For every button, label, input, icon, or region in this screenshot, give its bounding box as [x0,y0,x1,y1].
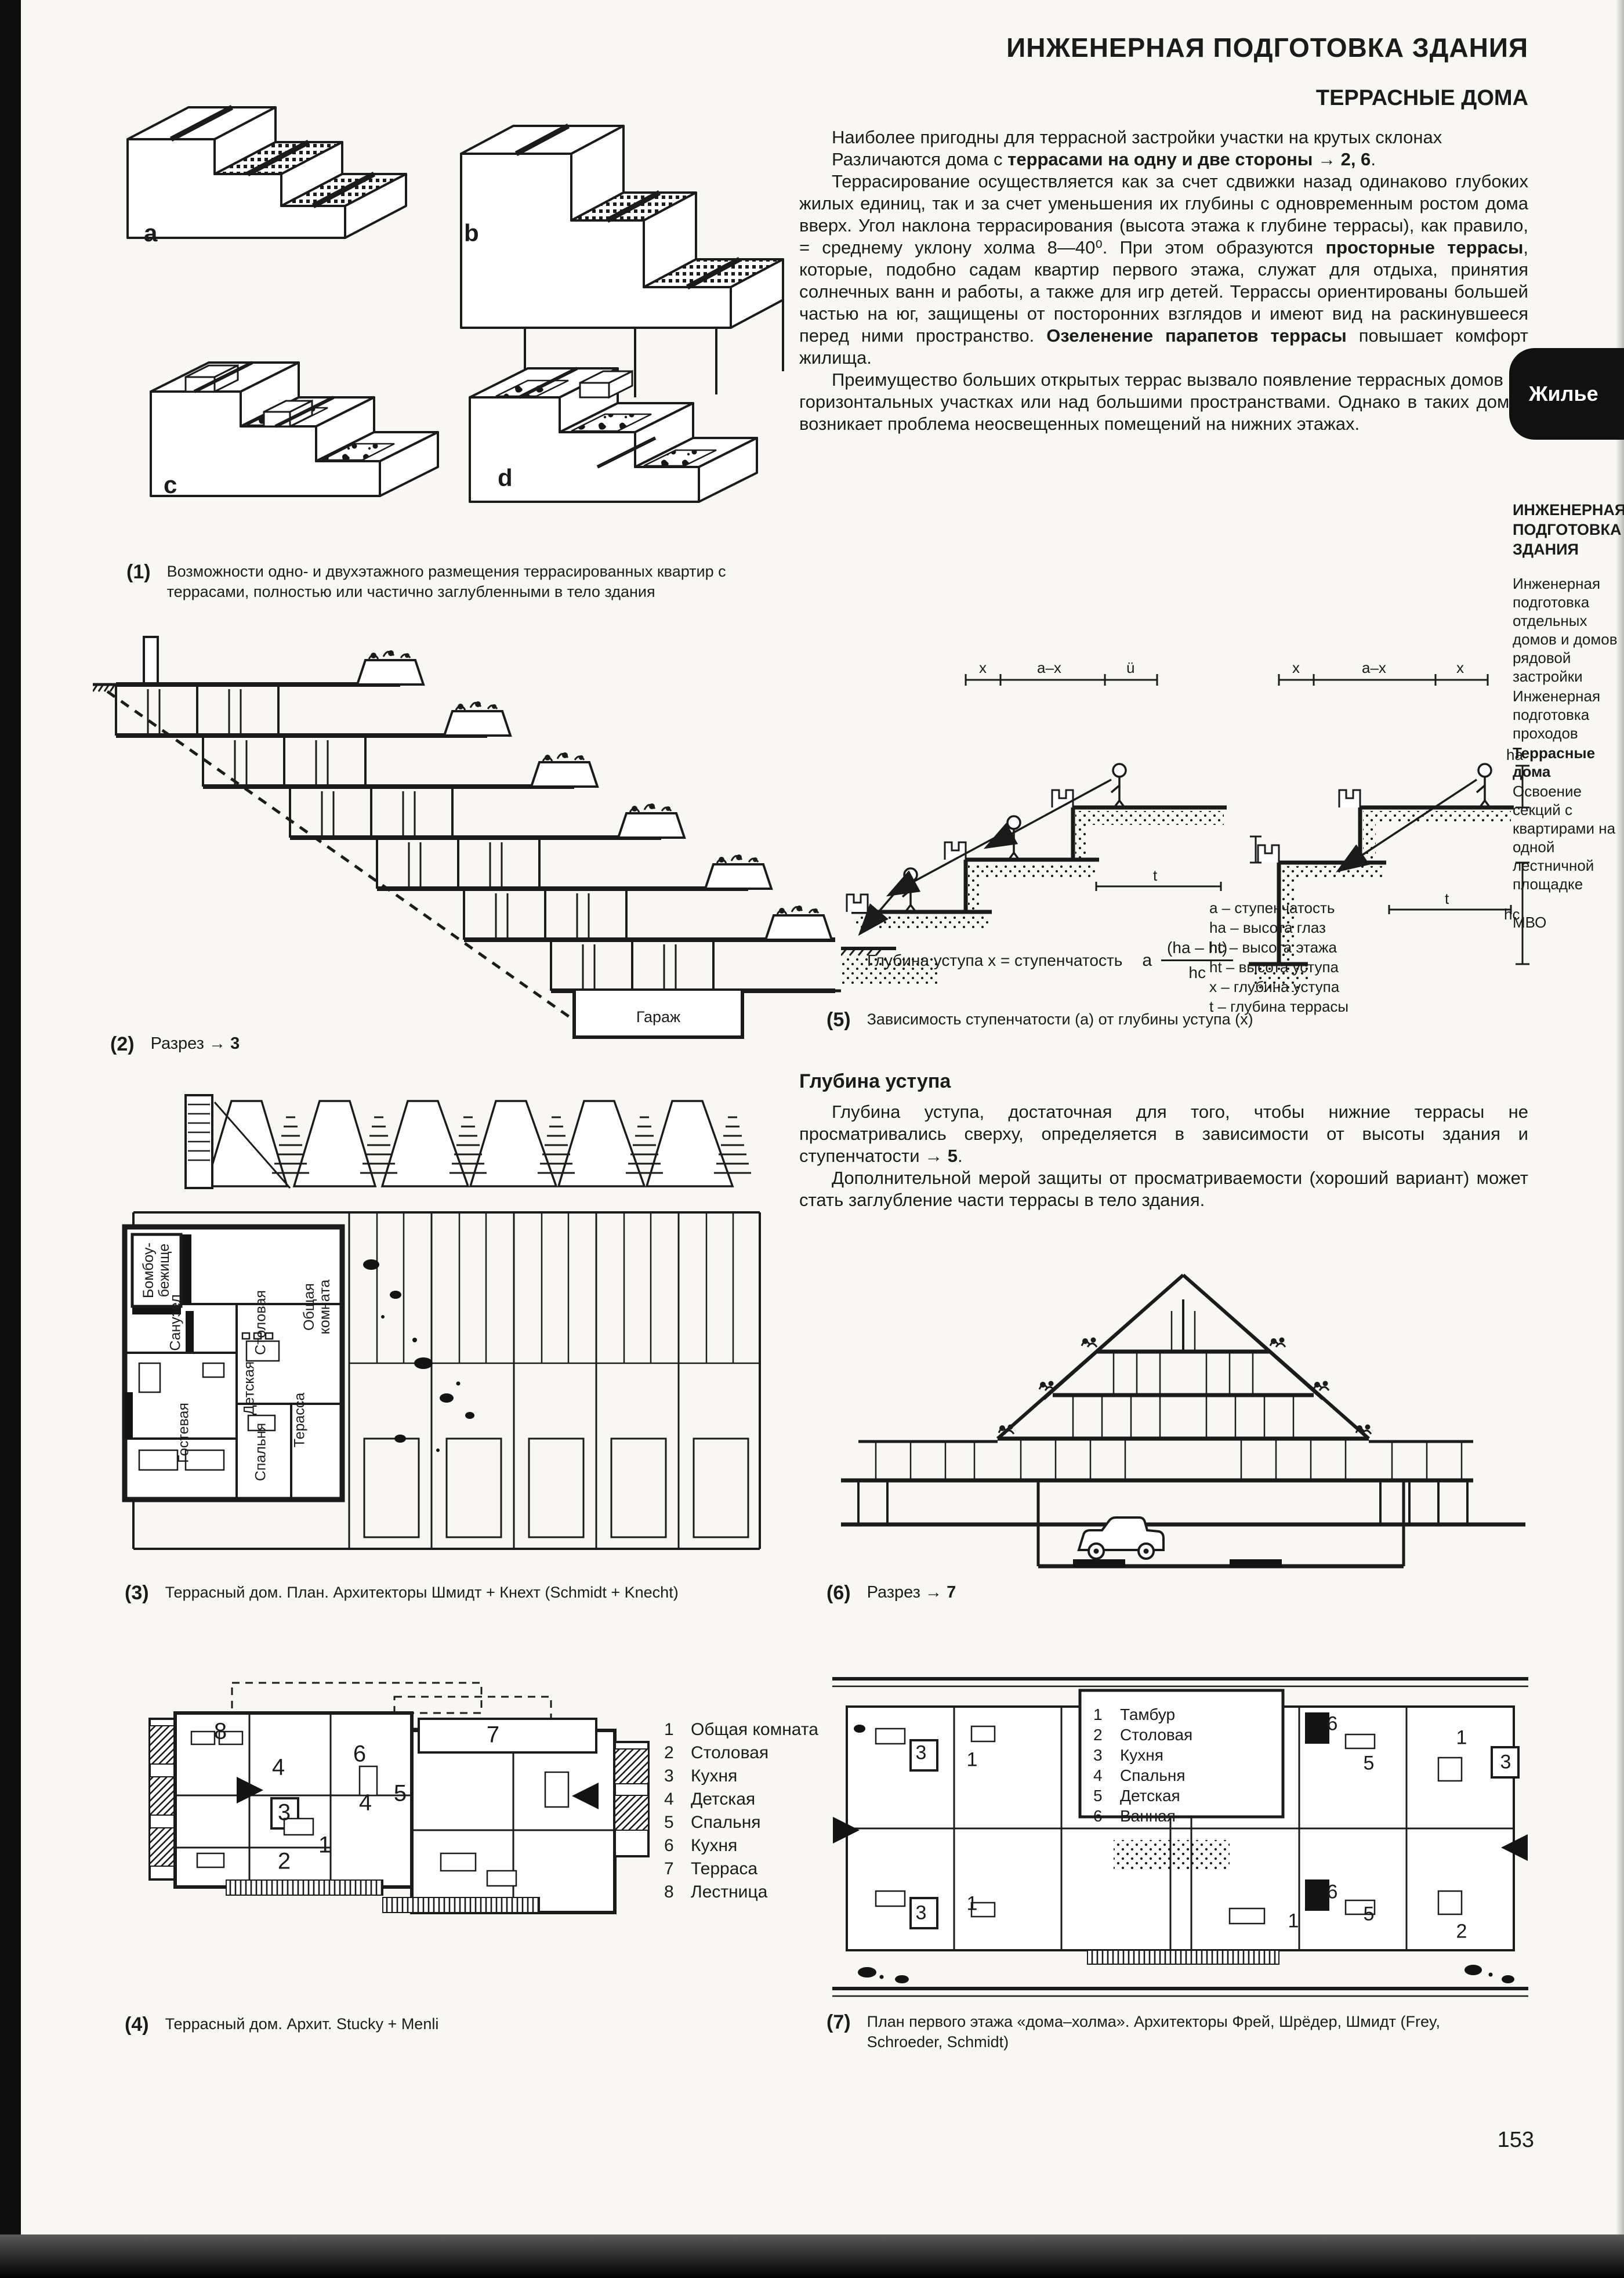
legend-item: 3Кухня [664,1765,826,1788]
formula-lhs: Глубина уступа х = ступенчатость [867,951,1122,970]
fig7-room-number: 3 [916,1902,927,1925]
fig4-room-number: 3 [278,1800,291,1826]
fig7-room-number: 5 [1364,1752,1375,1775]
fig6-caption: (6) Разрез → 7 [826,1582,1232,1603]
section-heading: Глубина уступа [799,1070,951,1093]
legend-item: 1Общая комната [664,1718,826,1741]
scan-right-edge [1616,0,1624,2234]
fig3-room-bath: Санузел [168,1294,184,1350]
fig7-caption: (7) План первого этажа «дома–холма». Арх… [826,2012,1511,2052]
legend-item: 1Тамбур [1093,1704,1267,1725]
paragraph: Глубина уступа, достаточная для того, чт… [799,1101,1528,1167]
fig3-room-dining: Столовая [253,1290,269,1355]
fig7-room-number: 1 [1288,1910,1299,1933]
page-title: ИНЖЕНЕРНАЯ ПОДГОТОВКА ЗДАНИЯ [800,32,1528,63]
fig6-caption-number: (6) [826,1582,851,1603]
fig4-room-number: 1 [318,1832,331,1859]
paragraph: Террасирование осуществляется как за сче… [799,171,1528,369]
legend-item: 4Детская [664,1788,826,1811]
fig4-room-number: 2 [278,1849,291,1875]
fig4-caption-text: Террасный дом. Архит. Stucky + Menli [165,2014,439,2034]
legend-item: 5Детская [1093,1786,1267,1806]
formula-fraction: (ha – ht) hc [1161,939,1233,982]
formula-numerator: (ha – ht) [1161,939,1233,961]
paragraph: Различаются дома с террасами на одну и д… [799,149,1528,171]
scan-left-edge [0,0,21,2278]
fig4-caption: (4) Террасный дом. Архит. Stucky + Menli [125,2014,763,2035]
fig7-caption-text: План первого этажа «дома–холма». Архитек… [867,2012,1511,2052]
fig5-legend-line: а – ступенчатость [1209,898,1453,918]
intro-text: Наиболее пригодны для террасной застройк… [799,126,1528,435]
fig1-label-b: b [464,219,479,247]
fig3-room-terrace: Терасса [292,1393,308,1447]
page-number: 153 [1392,2128,1534,2153]
fig5-dim-x: x [1292,659,1300,676]
fig5-dim-ha: ha [1506,746,1523,763]
fig5-dim-x: x [979,659,987,676]
fig2-caption: (2) Разрез → 3 [110,1034,516,1055]
section-tab: Жилье [1509,348,1624,440]
fig7-room-number: 1 [1456,1727,1467,1750]
fig7-room-number: 1 [967,1893,978,1915]
fig1-label-c: c [164,471,177,499]
legend-item: 3Кухня [1093,1745,1267,1765]
fig1-caption-number: (1) [126,562,151,582]
fig4-room-number: 4 [359,1790,372,1816]
depth-text: Глубина уступа, достаточная для того, чт… [799,1101,1528,1211]
sidebar-heading: ИНЖЕНЕРНАЯ ПОДГОТОВКА ЗДАНИЯ [1513,500,1621,559]
fig5-dim-ax: a–x [1362,659,1386,676]
fig5-legend-line: ht – высота уступа [1209,957,1453,977]
legend-item: 8Лестница [664,1881,826,1904]
legend-item: 4Спальня [1093,1765,1267,1786]
fig3-caption: (3) Террасный дом. План. Архитекторы Шми… [125,1582,792,1603]
fig4-room-number: 6 [353,1741,366,1768]
fig5-legend-line: hc – высота этажа [1209,937,1453,957]
fig7-room-number: 6 [1327,1881,1338,1904]
fig2-caption-number: (2) [110,1034,135,1055]
fig4-legend: 1Общая комната 2Столовая 3Кухня 4Детская… [664,1718,826,1904]
fig5-dim-u: ü [1126,659,1134,676]
fig1-caption-text: Возможности одно- и двухэтажного размеще… [167,562,793,602]
fig7-room-number: 2 [1456,1921,1467,1943]
fig4-caption-number: (4) [125,2014,149,2035]
paragraph: Наиболее пригодны для террасной застройк… [799,126,1528,149]
fig2-caption-text: Разрез → 3 [151,1034,240,1054]
legend-item: 5Спальня [664,1811,826,1834]
legend-item: 2Столовая [664,1741,826,1765]
fig1-label-d: d [498,464,513,492]
fig5-caption-number: (5) [826,1009,851,1030]
paragraph: Преимущество больших открытых террас выз… [799,369,1528,435]
fig5-formula: Глубина уступа х = ступенчатость а (ha –… [867,939,1233,982]
fig4-room-number: 5 [394,1781,407,1807]
fig4-room-number: 7 [487,1722,499,1748]
paragraph: Дополнительной мерой защиты от просматри… [799,1167,1528,1211]
fig2-section-drawing: Гараж [93,626,841,1041]
fig5-caption: (5) Зависимость ступенчатости (а) от глу… [826,1009,1522,1030]
fig2-garage-label: Гараж [636,1008,680,1026]
fig5-dim-x: x [1456,659,1464,676]
fig3-room-child: Детская [242,1361,258,1415]
fig3-room-bed: Спальня [253,1423,269,1481]
legend-item: 2Столовая [1093,1725,1267,1745]
fig5-dim-hc: hc [1504,906,1520,923]
fig4-room-number: 8 [214,1719,227,1745]
fig3-caption-number: (3) [125,1582,149,1603]
section-tab-label: Жилье [1509,382,1598,406]
book-page: ИНЖЕНЕРНАЯ ПОДГОТОВКА ЗДАНИЯ ТЕРРАСНЫЕ Д… [0,0,1624,2278]
fig5-legend-line: ha – высота глаз [1209,918,1453,937]
fig7-legend: 1Тамбур 2Столовая 3Кухня 4Спальня 5Детск… [1093,1704,1267,1826]
formula-a: а [1142,951,1152,970]
fig7-room-number: 5 [1364,1903,1375,1926]
fig6-section-drawing [824,1265,1543,1578]
fig7-room-number: 3 [1500,1751,1511,1774]
fig5-dim-ax: a–x [1037,659,1061,676]
fig6-caption-text: Разрез → 7 [867,1582,956,1603]
fig7-room-number: 3 [916,1742,927,1765]
fig7-caption-number: (7) [826,2012,851,2033]
fig3-room-guest: Гостевая [176,1403,192,1463]
legend-item: 7Терраса [664,1857,826,1881]
fig7-room-number: 1 [967,1749,978,1772]
fig3-plan-drawing [99,1091,783,1578]
fig5-legend: а – ступенчатость ha – высота глаз hc – … [1209,898,1453,1016]
fig5-caption-text: Зависимость ступенчатости (а) от глубины… [867,1009,1253,1030]
fig5-legend-line: х – глубина уступа [1209,977,1453,997]
fig1-axonometric-c [130,322,449,513]
scan-bottom-edge [0,2234,1624,2278]
fig1-caption: (1) Возможности одно- и двухэтажного раз… [126,562,793,602]
legend-item: 6Кухня [664,1834,826,1857]
fig5-dim-t: t [1153,867,1158,884]
legend-item: 6Ванная [1093,1806,1267,1826]
formula-denominator: hc [1161,961,1233,982]
fig7-room-number: 6 [1327,1713,1338,1736]
page-subtitle: ТЕРРАСНЫЕ ДОМА [800,86,1528,111]
fig3-caption-text: Террасный дом. План. Архитекторы Шмидт +… [165,1582,679,1603]
fig1-label-a: a [144,219,157,247]
fig3-room-living: Общая комната [302,1263,333,1350]
fig4-room-number: 4 [272,1755,285,1781]
